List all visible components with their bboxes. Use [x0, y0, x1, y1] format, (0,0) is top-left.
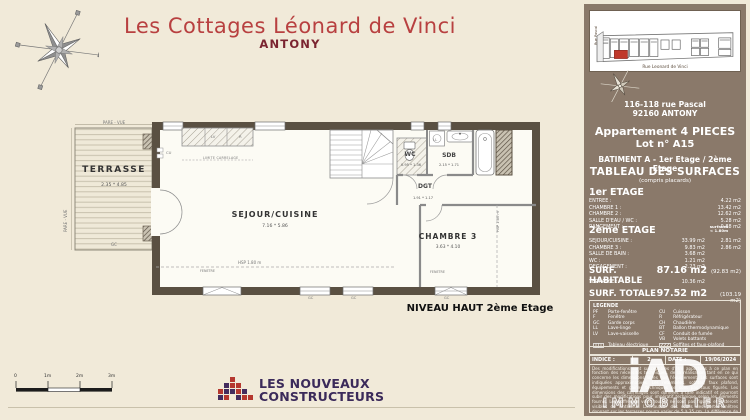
scale-label-3m: 3m — [108, 374, 115, 379]
disclaimer-text: Des modifications sont susceptibles d'êt… — [589, 364, 741, 413]
site-plan-drawing — [590, 11, 740, 71]
annotation-ll: LL — [433, 137, 437, 142]
table-row: SALLE DE BAIN :3.68 m2 — [589, 252, 741, 257]
page-title: Les Cottages Léonard de Vinci — [0, 14, 580, 38]
terrasse-total-row: TERRASSE : 10.36 m2 — [589, 279, 741, 285]
scale-label-1m: 1m — [44, 374, 51, 379]
room-dim-terrasse: 2.35 * 4.85 — [75, 183, 153, 188]
row-value-under180: 2.86 m2 — [705, 246, 741, 251]
floor1-heading: 1er ETAGE — [589, 187, 741, 198]
annotation-hsp-vertical: HSP 1.80 m — [496, 211, 500, 232]
row-value: 4.22 m2 — [705, 199, 741, 204]
site-street-side-label: Rue Pascal — [594, 26, 598, 45]
annotation-hsp-horizontal: HSP 1.80 m — [238, 260, 261, 265]
builder-logo-mark-icon — [218, 376, 254, 404]
page-subtitle-city: ANTONY — [0, 37, 580, 51]
annotation-lv: LV — [211, 134, 215, 139]
row-label: SEJOUR/CUISINE : — [589, 239, 669, 244]
indice-value: 2 — [633, 356, 666, 364]
legend-box: LEGENDE PFPorte-fenêtreCUCuisson FFenêtr… — [589, 300, 741, 347]
indice-label: INDICE : — [590, 356, 633, 364]
legend-title: LEGENDE — [593, 303, 737, 309]
room-label-chambre3: CHAMBRE 3 — [400, 232, 496, 241]
annotation-cu: CU — [166, 150, 171, 155]
annotation-gc-terrace: GC — [75, 242, 153, 247]
annotation-limite-carrelage: LIMITE CARRELAGE — [203, 156, 239, 160]
sheet-bottom-rule — [8, 407, 575, 408]
builder-logo: LES NOUVEAUX CONSTRUCTEURS — [218, 376, 384, 404]
floor-plan-sheet: Les Cottages Léonard de Vinci ANTONY — [0, 0, 750, 420]
site-plan-box: Rue Pascal Rue Leonard de Vinci — [589, 10, 741, 72]
terrasse-label: TERRASSE : — [589, 279, 669, 285]
under-180-column-header: surfaces < 1.80m — [699, 225, 739, 234]
surface-table-title: TABLEAU DES SURFACES — [589, 166, 741, 178]
room-dim-sejour: 7.16 * 5.86 — [210, 224, 340, 229]
terrasse-value: 10.36 m2 — [669, 279, 705, 285]
table-row: ENTREE :4.22 m2 — [589, 199, 741, 204]
room-label-sejour-cuisine: SEJOUR/CUISINE — [210, 210, 340, 219]
level-label: NIVEAU HAUT 2ème Etage — [385, 303, 575, 314]
room-dim-chambre3: 3.63 * 4.10 — [400, 245, 496, 250]
address-line2: 92160 ANTONY — [589, 109, 741, 118]
row-value: 33.99 m2 — [669, 239, 705, 244]
address-line1: 116-118 rue Pascal — [589, 100, 741, 109]
annotation-fenetre-2: FENETRE — [430, 270, 445, 274]
lot-number: Lot n° A15 — [589, 139, 741, 152]
annotation-pare-vue-left: PARE - VUE — [63, 210, 68, 232]
row-value-under180: 2.81 m2 — [705, 239, 741, 244]
scale-label-2m: 2m — [76, 374, 83, 379]
row-label: CHAMBRE 2 : — [589, 212, 669, 217]
table-row: SEJOUR/CUISINE :33.99 m22.81 m2 — [589, 239, 741, 244]
builder-logo-line2: CONSTRUCTEURS — [259, 390, 384, 404]
panel-compass-icon — [598, 70, 642, 102]
annotation-gc-window1: GC — [308, 296, 313, 300]
room-label-dgt: DGT — [412, 183, 438, 190]
row-label: ENTREE : — [589, 199, 669, 204]
annotation-pare-vue-top: PARE - VUE — [75, 120, 153, 125]
date-value: 19/06/2024 — [701, 356, 740, 364]
annotation-fenetre-1: FENETRE — [200, 269, 215, 273]
annotation-r: R — [239, 134, 242, 139]
room-dim-dgt: 1.91 * 1.17 — [406, 196, 440, 200]
plan-notarie-banner: PLAN NOTARIE — [589, 346, 741, 355]
room-label-terrasse: TERRASSE — [75, 165, 153, 175]
room-dim-sdb: 2.15 * 1.71 — [432, 163, 466, 167]
scale-bar — [14, 378, 120, 396]
builder-logo-line1: LES NOUVEAUX — [259, 377, 384, 391]
surface-totale-label: SURF. TOTALE — [589, 289, 657, 299]
apartment-type: Appartement 4 PIECES — [589, 125, 741, 139]
surface-totale-value: 97.52 m2 — [657, 288, 707, 299]
floor2-heading: 2ème ETAGE surfaces < 1.80m — [589, 225, 741, 236]
room-label-sdb: SDB — [436, 152, 462, 159]
row-value: 12.62 m2 — [705, 212, 741, 217]
room-dim-wc: 0.95 * 1.36 — [394, 163, 428, 167]
surface-table-subtitle: (compris placards) — [589, 178, 741, 184]
table-row: CHAMBRE 2 :12.62 m2 — [589, 212, 741, 217]
annotation-gc-window3: GC — [444, 296, 449, 300]
room-label-wc: WC — [397, 151, 423, 158]
surface-habitable-value: 87.16 m2 — [657, 265, 707, 276]
floor2-title: 2ème ETAGE — [589, 225, 656, 236]
site-street-front-label: Rue Leonard de Vinci — [642, 65, 687, 70]
row-value: 3.68 m2 — [669, 252, 705, 257]
surface-habitable-extra: (92.83 m2) — [709, 269, 741, 275]
annotation-gc-window2: GC — [351, 296, 356, 300]
row-label: SALLE DE BAIN : — [589, 252, 669, 257]
date-label: DATE : — [666, 356, 701, 364]
scale-label-0: 0 — [14, 374, 17, 379]
title-block-panel: Rue Pascal Rue Leonard de Vinci 116-118 … — [584, 4, 746, 416]
